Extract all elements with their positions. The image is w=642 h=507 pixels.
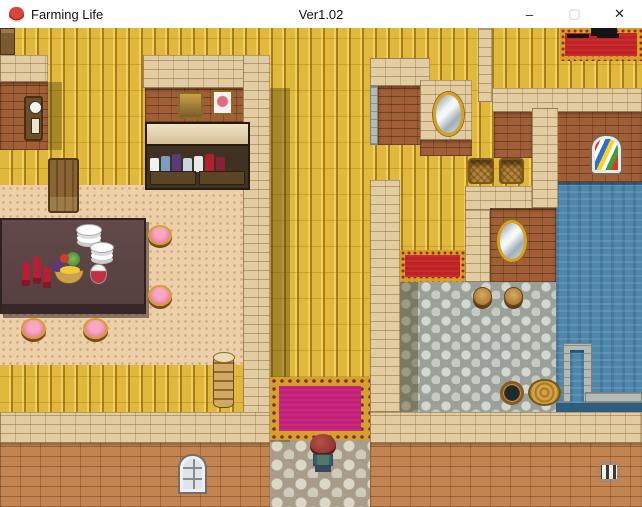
corridor-wall-right — [370, 180, 400, 412]
bananas — [60, 266, 80, 274]
character-hair — [310, 434, 336, 456]
wine-bottle — [33, 256, 41, 284]
barred-vent — [598, 462, 620, 482]
wall-face — [494, 112, 532, 158]
apple — [60, 254, 69, 263]
wall-top — [465, 186, 532, 210]
wall-shadow — [400, 282, 418, 412]
wall-face — [420, 140, 472, 156]
bottles-icon — [216, 157, 225, 172]
wall-shadow — [48, 82, 62, 150]
corridor-wall-left — [243, 55, 270, 442]
pool-deep-edge — [556, 403, 642, 412]
drawer — [199, 171, 245, 185]
plate-stack — [76, 224, 102, 236]
teapot-icon — [194, 156, 203, 172]
cabinet-shelf — [150, 150, 245, 172]
maximize-button: ▢ — [552, 0, 597, 28]
cabinet-counter — [147, 124, 248, 146]
pink-stool — [21, 318, 46, 339]
exterior-wall-top — [370, 412, 642, 443]
cabinet-drawers — [150, 171, 245, 185]
character-body — [313, 454, 333, 466]
title-bar: Farming Life Ver1.02 – ▢ ✕ — [0, 0, 642, 28]
plate-stack — [90, 242, 114, 253]
pool-edge — [585, 392, 642, 403]
plates-icon — [150, 158, 159, 172]
bottles-icon — [205, 154, 214, 172]
app-window: Farming Life Ver1.02 – ▢ ✕ — [0, 0, 642, 507]
minimize-button[interactable]: – — [507, 0, 552, 28]
pink-stool — [83, 318, 108, 339]
app-icon — [9, 7, 24, 22]
wicker-basket — [499, 158, 524, 184]
wooden-stool — [473, 287, 492, 306]
red-carpet-center — [565, 33, 637, 56]
pink-stool — [148, 225, 172, 245]
pool-steps-water — [570, 350, 584, 403]
wall-column — [478, 28, 492, 102]
red-rug — [400, 250, 465, 282]
exterior-wall-top — [0, 412, 270, 443]
oval-mirror — [433, 92, 464, 136]
wooden-stool — [504, 287, 523, 306]
wall-top — [492, 88, 642, 112]
wine-bottle — [43, 266, 51, 288]
kettle-icon — [183, 158, 192, 172]
stone-pillar — [370, 86, 378, 145]
wine-decanter — [90, 264, 107, 284]
corner-shelf — [0, 28, 15, 55]
jar-icon — [161, 156, 170, 172]
flower-painting — [212, 90, 233, 115]
wall-column — [465, 210, 490, 282]
stained-glass-window — [592, 136, 621, 173]
water-bucket — [500, 381, 524, 405]
wine-bottle — [22, 262, 30, 286]
wall-top — [0, 55, 48, 82]
pink-rug — [270, 377, 370, 440]
red-rug-center — [405, 255, 460, 277]
grandfather-clock — [24, 96, 43, 141]
character-legs — [315, 466, 331, 472]
exterior-wall — [0, 443, 270, 507]
oval-mirror — [497, 220, 527, 262]
window-controls: – ▢ ✕ — [507, 0, 642, 28]
window-title: Farming Life — [31, 7, 103, 22]
close-button[interactable]: ✕ — [597, 0, 642, 28]
player-character — [309, 434, 337, 474]
pool-side-wall — [532, 108, 558, 208]
pink-rug-center — [279, 386, 361, 431]
wooden-basin — [528, 379, 561, 406]
log-stack — [213, 355, 234, 408]
wooden-chair — [48, 158, 79, 213]
goblets-icon — [172, 154, 181, 172]
drawer — [150, 171, 196, 185]
portrait-painting — [178, 92, 203, 119]
fruit-bowl — [52, 252, 86, 286]
dining-table — [0, 218, 146, 314]
pink-stool — [148, 285, 172, 306]
kitchen-cabinet — [145, 122, 250, 190]
game-viewport[interactable] — [0, 28, 642, 507]
wicker-basket — [468, 158, 494, 184]
arched-window — [180, 456, 205, 492]
black-table — [591, 28, 617, 36]
